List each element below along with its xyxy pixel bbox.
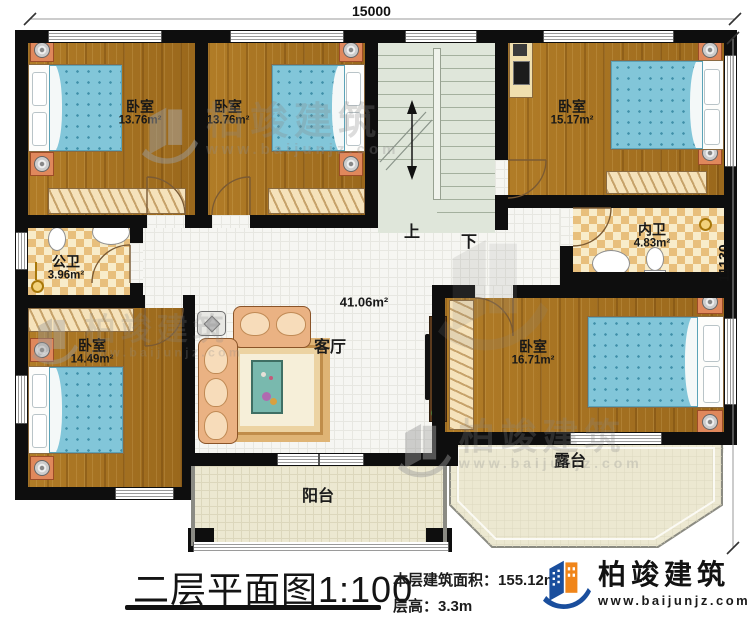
bed — [28, 366, 124, 454]
nightstand — [697, 410, 723, 434]
room-label-terrace: 露台 — [554, 453, 586, 471]
window — [230, 31, 344, 42]
room-label-public-bath: 公卫 3.96m² — [48, 253, 84, 282]
floor-height-text: 层高：3.3m — [393, 595, 472, 616]
room-label-private-bath: 内卫 4.83m² — [634, 221, 670, 250]
sliding-door-divider — [318, 454, 320, 465]
window — [16, 232, 27, 270]
floor-drain — [31, 280, 44, 293]
sofa-loveseat — [233, 306, 311, 348]
wall — [365, 30, 378, 228]
window — [543, 31, 674, 42]
window — [570, 433, 662, 444]
coffee-table — [251, 360, 283, 414]
nightstand — [339, 152, 363, 176]
door-opening — [495, 160, 508, 195]
nightstand — [30, 338, 54, 362]
balcony-window — [193, 542, 449, 552]
drain-pipe — [35, 262, 37, 280]
window — [115, 488, 174, 499]
sliding-door — [277, 454, 364, 465]
room-label-bedroom-top-mid: 卧室 13.76m² — [207, 98, 250, 127]
room-label-balcony: 阳台 — [302, 488, 334, 506]
window — [48, 31, 162, 42]
stair-up-label: 上 — [404, 224, 420, 242]
stair-handrail — [433, 48, 441, 200]
floor-plan-page: 卧室 13.76m² 卧室 13.76m² 卧室 15.17m² 公卫 3.96… — [0, 0, 750, 622]
balcony-rail — [443, 466, 447, 546]
stair-treads-lower — [437, 161, 495, 219]
dimension-top: 15000 — [352, 3, 391, 19]
brand-name: 柏竣建筑 — [598, 553, 750, 593]
balcony-rail — [191, 466, 195, 546]
door-opening — [560, 208, 573, 246]
dimension-right: 11130 — [716, 244, 732, 281]
bed — [610, 60, 724, 150]
nightstand — [30, 456, 54, 480]
tv-cabinet — [509, 38, 533, 98]
watermark-logo-icon — [438, 215, 548, 358]
tv-icon — [425, 334, 430, 400]
window — [725, 318, 736, 405]
window — [725, 55, 736, 167]
brand-website: www.baijunjz.com — [598, 593, 750, 608]
wall — [15, 215, 378, 228]
window — [16, 375, 27, 424]
wall — [495, 195, 737, 208]
wardrobe — [48, 188, 186, 214]
room-label-bedroom-top-left: 卧室 13.76m² — [119, 98, 162, 127]
brand-logo-icon — [543, 550, 591, 610]
bed — [271, 64, 365, 152]
nightstand — [30, 152, 54, 176]
floor-area-text: 本层建筑面积：155.12m² — [393, 569, 562, 590]
title-underline — [125, 605, 381, 610]
brand-logo: 柏竣建筑 www.baijunjz.com — [543, 550, 750, 610]
bed — [587, 316, 724, 408]
door-opening — [145, 295, 183, 308]
floor-drain — [699, 218, 712, 231]
living-area-value: 41.06m² — [340, 296, 388, 311]
wall — [560, 272, 737, 285]
door-opening — [147, 215, 185, 228]
room-label-living: 客厅 — [314, 339, 346, 357]
wall — [195, 30, 208, 228]
speaker-icon — [513, 44, 527, 56]
toilet-bowl — [48, 227, 66, 251]
room-label-bedroom-top-right: 卧室 15.17m² — [551, 98, 594, 127]
window — [405, 31, 477, 42]
side-table — [197, 311, 226, 336]
wardrobe — [268, 188, 365, 214]
tv-icon — [513, 61, 530, 85]
bed — [28, 64, 122, 152]
door-opening — [212, 215, 250, 228]
floor-balcony — [193, 466, 446, 548]
sofa-long — [198, 338, 238, 444]
wardrobe — [606, 171, 707, 194]
wardrobe — [28, 308, 134, 332]
door-opening — [130, 243, 143, 283]
room-label-bedroom-bottom-left: 卧室 14.49m² — [71, 337, 114, 366]
